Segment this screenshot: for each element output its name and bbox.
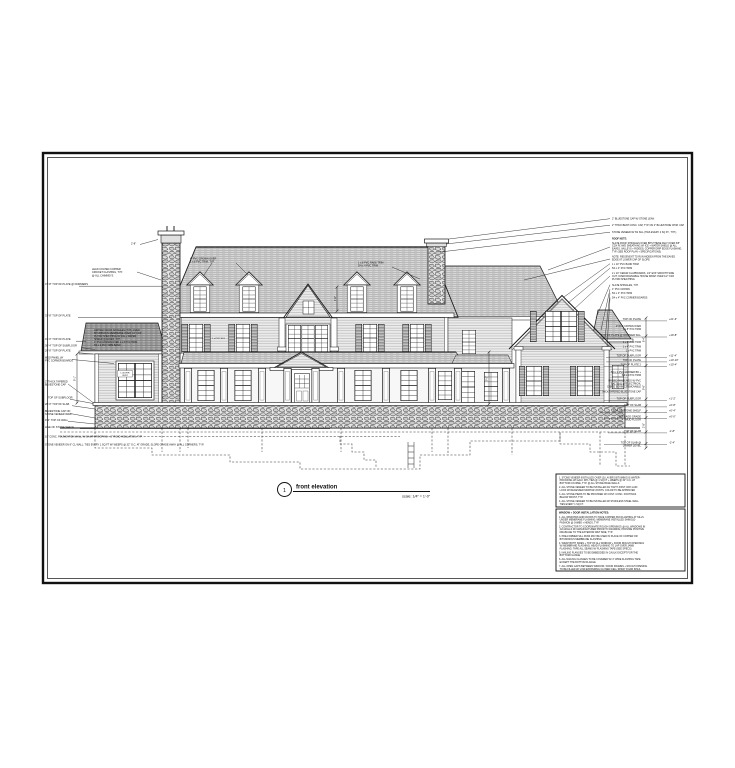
level-value: +10'-4" [669, 363, 677, 367]
level-value: +0'-0" [669, 415, 676, 419]
left-note-foundation: 10" CONC. FOUNDATION WALL W/ DAMP-PROOFI… [45, 436, 143, 439]
level-value: +21'-6" [669, 317, 677, 321]
left-row-3: 30'-4" TOP OF SUBFLOOR [45, 344, 77, 348]
left-note-veneer: STONE VENEER ON 8" CL WALL, TIES EVERY 1… [45, 444, 204, 447]
left-note-cap-on-wall: BLUESTONE CAP ONSTONE VENEER WALL [45, 410, 73, 416]
note-item: 2. ALL STONE VENEER TO BE INSTALLED AS T… [559, 486, 638, 492]
drawing-number: 1 [283, 488, 286, 494]
level-label: TOP OF SLAB [624, 403, 641, 407]
level-label: TOP OF SUBFLOOR [616, 354, 641, 358]
left-row-5: TOP OF SUBFLOOR [48, 396, 73, 400]
dim-dormer: 4'-6" [334, 296, 337, 301]
bluestone-cap [93, 403, 627, 406]
notes-heading: WINDOW + DOOR INSTALLATION NOTES: [559, 512, 609, 515]
pvc-sill-label: 1 x PVC SILL [212, 338, 226, 340]
callout-band-trim: 1 x 10" PVC BAND TRIM [612, 263, 639, 266]
note-item: 7. ALL OPEN GAPS BETWEEN WINDOW / DOOR F… [559, 565, 647, 571]
callout-pvc-trim-2: 5/4 x 4" PVC TRIM [612, 292, 632, 295]
front-elevation-sheet: LOUVERVENT 1 x PVC SILL ASPHALT ROOF SHI… [0, 0, 735, 768]
left-chimney [158, 226, 184, 405]
level-value: -2'-4" [669, 441, 675, 445]
left-row-2: 31'-0" TOP OF PLATE [45, 337, 71, 341]
left-row-7: 9'-4" TOP OF WALL [45, 418, 69, 422]
dim-wing-story: 9'-0" [486, 376, 489, 381]
level-value: +19'-8" [669, 333, 677, 337]
left-note-bluestone: 2" THICK TAPEREDBLUESTONE CAP [45, 381, 68, 387]
level-label: TOP OF SLAB [624, 429, 641, 433]
right-chimney [425, 239, 449, 304]
level-label: TOP OF PLATE [623, 317, 642, 321]
left-row-8: LINE OF STONE SHELF [45, 425, 74, 429]
top-note-pvc-crown: 4" PVC CROWN OVER1 x 8 PVC TRIM, TYP. [190, 258, 217, 264]
level-label: TOP OF SLAB @LOWER LEVEL [621, 441, 642, 448]
level-note: 1 x PVC TRIM [626, 350, 641, 353]
level-value: +1'-2" [669, 397, 676, 401]
callout-bluestone-cap: 2" BLUESTONE CAP W/ STONE LEAN [612, 218, 654, 221]
callout-stone-veneer: STONE VENEER W/ SS SILL (TIES EVERY 2 SQ… [612, 231, 676, 234]
drawing-scale: scale: 1/4" = 1'-0" [402, 495, 431, 499]
callout-chimney-cap: 2" THICK BENT CONC. CAP, TYP. ON 2" BLUE… [612, 224, 685, 227]
callout-roof-note-head: ROOF NOTE: [612, 238, 627, 241]
level-value: -1'-8" [669, 429, 675, 433]
dim-left-story: 9'-1" [74, 376, 77, 381]
drawing-page: LOUVERVENT 1 x PVC SILL ASPHALT ROOF SHI… [0, 0, 735, 768]
dim-right-low: 2'-8" [642, 423, 645, 428]
level-label: TOP OF PLATE 2 [621, 363, 642, 367]
level-label: TOP OF PLATE [623, 358, 642, 362]
level-label: TOP OF SUBFLOOR [616, 397, 641, 401]
front-porch [179, 352, 514, 404]
level-value: +10'-10" [669, 358, 679, 362]
dim-right-upper: 8'-4" [642, 337, 645, 342]
level-note: RAISED PANEL MDO W/ PVCBATTENS W/ ELECTR… [607, 380, 642, 389]
left-row-4: 29'-8" TOP OF PLATE [45, 349, 71, 353]
level-note: 1 x 4" PVC TRIM [623, 346, 641, 349]
general-notes-box: 1. STONE VENEER INSTALLED OVER (2) LAYER… [556, 474, 685, 507]
left-row-1: 33'-8" TOP OF PLATE [45, 314, 71, 318]
level-label: TOP OF STONE SHELF [613, 409, 642, 413]
drawing-title: front elevation [296, 485, 338, 491]
entry-door [292, 370, 313, 405]
window-door-notes-box: WINDOW + DOOR INSTALLATION NOTES: 1. ALL… [556, 509, 685, 571]
level-label: TOP OF PLATE @ DORMER SILL [601, 333, 642, 337]
dim-right-mid: 9'-6" [642, 385, 645, 390]
callout-pvc-trim-1: 5/4 x 4" PVC TRIM [612, 267, 632, 270]
level-value: +11'-4" [669, 354, 677, 358]
level-value: +0'-4" [669, 409, 676, 413]
dim-chimney: 2'-8" [131, 242, 136, 246]
callout-slate: SLATE SHINGLES, TYP. [612, 284, 639, 287]
stone-base-wall [95, 405, 625, 428]
level-value: +0'-8" [669, 403, 676, 407]
level-note: 1 x 8" PVC TRIM [623, 341, 641, 344]
left-row-0: 37'-8" TOP OF PLATE @ DORMERS [45, 282, 88, 286]
level-note: 2" THICK TAPERED BLUESTONE CAP [599, 391, 642, 394]
left-row-6: 28'-0" TOP OF SLAB [45, 402, 69, 406]
callout-pvc-crown: 4" PVC CROWN [612, 288, 630, 291]
callout-corner-boards: 5/4 x 4" PVC CORNER BOARDS [612, 297, 648, 300]
